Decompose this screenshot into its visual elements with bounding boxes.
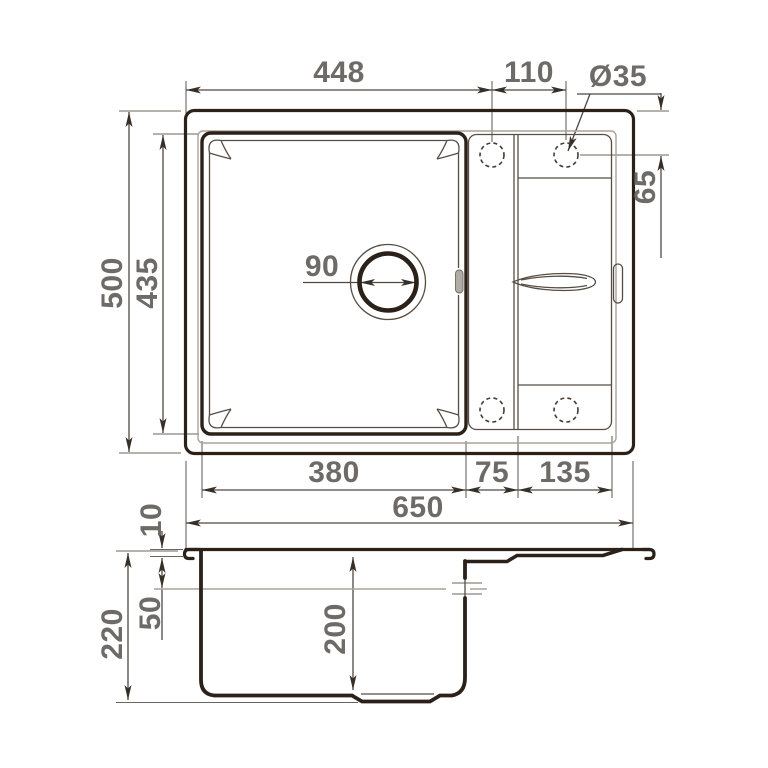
dimension-lines [128,90,661,700]
tap-hole [554,143,578,167]
dim-label-65: 65 [629,170,662,204]
sink-dimension-drawing: 448 110 Ø35 500 435 90 65 380 75 135 650… [0,0,768,768]
drainer-cell-lines [518,178,611,385]
dim-label-10: 10 [135,503,168,537]
dim-label-435: 435 [131,257,164,309]
dimension-labels: 448 110 Ø35 500 435 90 65 380 75 135 650… [96,56,662,660]
overflow-slot [614,264,623,303]
dim-label-380: 380 [308,456,360,489]
bowl-overflow-hole [456,270,464,293]
tap-hole [554,398,578,422]
dim-label-135: 135 [539,456,591,489]
dim-label-200: 200 [319,603,352,655]
drainer-channel-blade-inner [521,276,587,288]
tap-hole [480,398,504,422]
dim-label-220: 220 [96,608,129,660]
dim-label-d35: Ø35 [589,60,647,93]
dim-label-110: 110 [504,56,554,89]
bowl-outline [202,133,466,434]
dim-label-75: 75 [475,456,509,489]
technical-drawing-canvas: 448 110 Ø35 500 435 90 65 380 75 135 650… [0,0,768,768]
rim-left-lip [185,550,201,559]
bowl-corner-facets [209,140,459,428]
bowl-inner-lines [210,141,459,428]
tap-hole [480,143,504,167]
extension-lines [116,81,669,703]
dim-label-650: 650 [392,491,444,524]
rim-right-lip [643,550,654,559]
dim-label-500: 500 [96,257,129,309]
tap-holes [480,143,578,422]
dim-label-90: 90 [305,250,339,283]
dim-label-448: 448 [313,56,365,89]
drainer-section-profile [465,550,622,562]
dim-label-50: 50 [134,596,167,630]
side-section-view [154,550,654,702]
